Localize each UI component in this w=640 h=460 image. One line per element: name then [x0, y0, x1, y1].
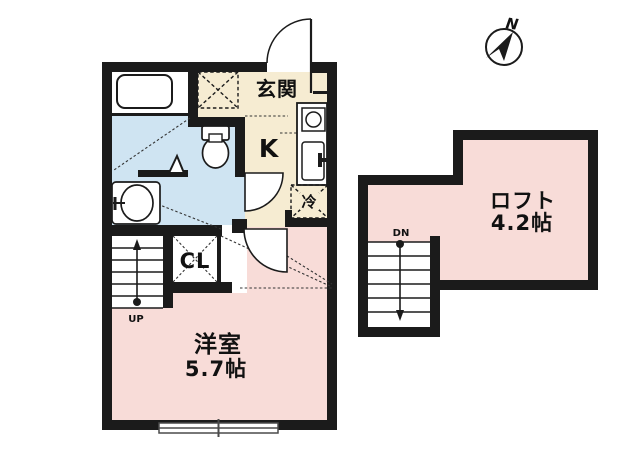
loft-size-label: 4.2帖 [491, 211, 553, 235]
main-room-size-label: 5.7帖 [185, 357, 247, 381]
entrance-label: 玄関 [256, 77, 298, 101]
kitchen-label: K [259, 134, 280, 163]
north-compass-icon: N [486, 14, 522, 65]
loft-wall-stairs-bottom [358, 327, 440, 337]
loft-wall-left [358, 175, 368, 337]
bath-divider-line [112, 113, 188, 116]
loft-wall-top [453, 130, 598, 140]
wall-under-fridge [292, 218, 337, 227]
bathtub-icon [117, 75, 172, 108]
kitchen-counter [297, 103, 331, 185]
closet-label: CL [180, 249, 211, 273]
compass-north-label: N [505, 14, 520, 34]
wall-washroom-bottom [102, 225, 222, 236]
toilet-icon [202, 126, 229, 168]
wall-closet-right [217, 236, 221, 282]
loft-wall-upper-left [358, 175, 463, 185]
loft-wall-right [588, 130, 598, 290]
floor-plan-page: 冷 [0, 0, 640, 460]
fridge-label: 冷 [301, 193, 317, 211]
faucet-handle-icon [318, 153, 322, 167]
wall-left [102, 62, 112, 430]
wall-toilet-right [235, 117, 245, 177]
washbasin-icon [112, 182, 160, 224]
stove-burner-icon [306, 112, 321, 127]
loft-label: ロフト [490, 189, 556, 213]
stairs-down-label: DN [393, 228, 410, 239]
main-room-label: 洋室 [194, 331, 242, 358]
floor-plan-drawing: 冷 [0, 0, 640, 460]
stairs-up-label: UP [128, 314, 143, 325]
wall-right [327, 62, 337, 430]
wall-top-left [102, 62, 267, 72]
loft-wall-stairs-right [430, 236, 440, 337]
floor-areas [112, 72, 588, 420]
wall-stairs-right [163, 236, 173, 308]
wall-closet-bottom [170, 282, 232, 293]
loft-wall-bottom [440, 280, 598, 290]
